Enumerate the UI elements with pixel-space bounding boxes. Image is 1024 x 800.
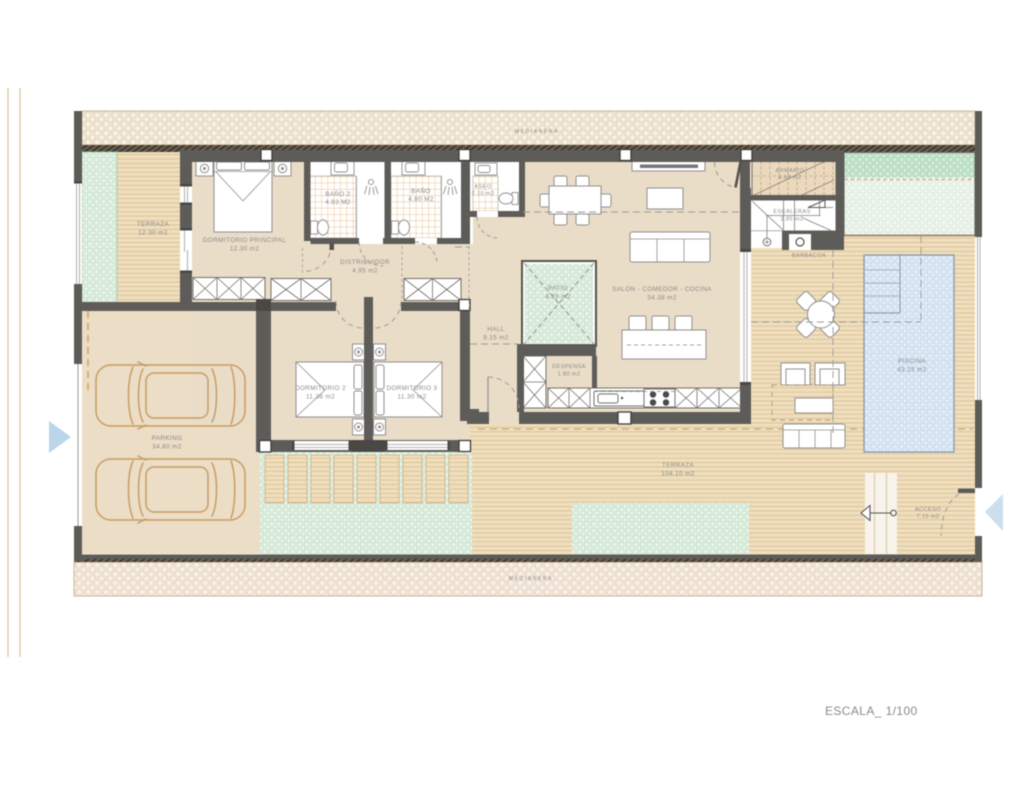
- svg-text:DISTRIBUIDOR: DISTRIBUIDOR: [340, 259, 390, 266]
- svg-text:HALL: HALL: [487, 326, 504, 333]
- svg-text:PARKING: PARKING: [152, 435, 183, 442]
- svg-text:SALÓN - COMEDOR - COCINA: SALÓN - COMEDOR - COCINA: [612, 284, 712, 293]
- svg-text:4.80 M2: 4.80 M2: [408, 196, 434, 203]
- svg-text:11.38 m2: 11.38 m2: [306, 394, 335, 401]
- svg-text:43.15 m2: 43.15 m2: [897, 367, 927, 374]
- svg-text:PATIO: PATIO: [548, 285, 568, 292]
- svg-text:DORMITORIO 2: DORMITORIO 2: [295, 385, 346, 392]
- svg-text:TERRAZA: TERRAZA: [662, 462, 695, 469]
- svg-text:MEDIANERA: MEDIANERA: [509, 576, 553, 582]
- svg-text:ARMARIO: ARMARIO: [776, 168, 805, 174]
- svg-text:DORMITORIO 3: DORMITORIO 3: [387, 385, 438, 392]
- svg-text:7.15 m2: 7.15 m2: [916, 514, 939, 520]
- svg-text:104.10 m2: 104.10 m2: [661, 471, 694, 478]
- svg-text:4.95 m2: 4.95 m2: [352, 268, 378, 275]
- svg-text:2.10 m2: 2.10 m2: [471, 191, 494, 197]
- svg-text:PISCINA: PISCINA: [898, 358, 926, 365]
- svg-text:4.83 M2: 4.83 M2: [325, 199, 351, 206]
- svg-text:9.15 m2: 9.15 m2: [483, 335, 509, 342]
- svg-text:MEDIANERA: MEDIANERA: [515, 129, 559, 135]
- svg-text:2.85 m2: 2.85 m2: [780, 217, 803, 223]
- svg-text:12.30 m2: 12.30 m2: [230, 246, 260, 253]
- svg-text:ESCALA_ 1/100: ESCALA_ 1/100: [825, 704, 918, 718]
- svg-text:BAÑO: BAÑO: [411, 186, 430, 195]
- svg-text:12.30 m2: 12.30 m2: [138, 230, 168, 237]
- svg-text:BAÑO 2: BAÑO 2: [325, 189, 351, 198]
- svg-text:ACCESO: ACCESO: [915, 507, 941, 513]
- svg-text:34.80 m2: 34.80 m2: [152, 444, 182, 451]
- svg-text:DESPENSA: DESPENSA: [552, 364, 586, 370]
- svg-text:1.80 m2: 1.80 m2: [557, 372, 580, 378]
- svg-text:ASEO: ASEO: [474, 184, 491, 190]
- svg-text:TERRAZA: TERRAZA: [137, 221, 170, 228]
- svg-text:4.65 m2: 4.65 m2: [778, 175, 801, 181]
- svg-text:BARBACOA: BARBACOA: [792, 253, 826, 259]
- svg-text:34.38 m2: 34.38 m2: [647, 295, 677, 302]
- svg-text:4.20 m2: 4.20 m2: [545, 294, 571, 301]
- svg-text:ESCALERAS: ESCALERAS: [773, 209, 810, 215]
- svg-text:DORMITORIO PRINCIPAL: DORMITORIO PRINCIPAL: [203, 237, 286, 244]
- svg-text:11.30 m2: 11.30 m2: [398, 394, 427, 401]
